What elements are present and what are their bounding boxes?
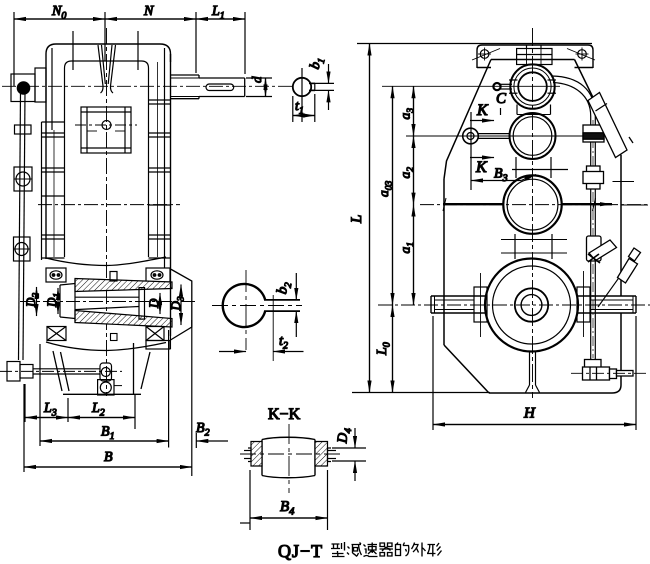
- svg-text:K−K: K−K: [268, 406, 301, 423]
- svg-text:b2: b2: [274, 280, 294, 295]
- svg-text:K: K: [476, 102, 489, 119]
- svg-text:B2: B2: [196, 421, 210, 439]
- svg-text:L: L: [349, 215, 365, 224]
- svg-text:B: B: [104, 450, 113, 465]
- svg-text:L1: L1: [211, 4, 225, 22]
- svg-text:C: C: [496, 91, 507, 107]
- svg-text:t2: t2: [279, 333, 288, 352]
- svg-text:K: K: [475, 159, 488, 176]
- svg-text:N0: N0: [51, 4, 66, 22]
- svg-text:D: D: [146, 298, 161, 309]
- svg-text:B4: B4: [280, 499, 295, 518]
- svg-text:L3: L3: [43, 401, 57, 419]
- svg-text:D2: D2: [23, 293, 42, 308]
- svg-text:b1: b1: [308, 55, 328, 71]
- svg-text:L0: L0: [375, 342, 393, 356]
- svg-text:a03: a03: [376, 181, 395, 198]
- svg-text:B3: B3: [494, 167, 508, 185]
- svg-text:QJ−T: QJ−T: [278, 541, 323, 561]
- svg-text:N: N: [143, 4, 154, 19]
- svg-text:B1: B1: [101, 425, 115, 443]
- svg-text:d: d: [249, 76, 264, 83]
- svg-text:L2: L2: [91, 401, 105, 419]
- svg-text:H: H: [523, 406, 536, 422]
- svg-text:D4: D4: [335, 427, 354, 445]
